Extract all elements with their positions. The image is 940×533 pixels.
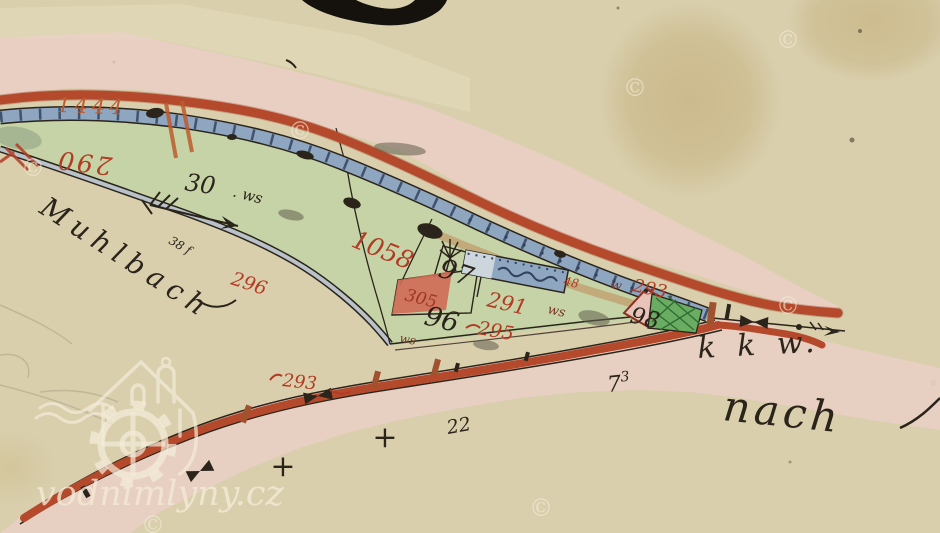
historic-cadastral-map: 1444 290 30 . ws 38 f Muhlbach 296 1058 … [0, 0, 940, 533]
copyright-icon: © [529, 494, 553, 522]
copyright-icon: © [776, 292, 800, 320]
parcel-label-293-lower: 293 [280, 370, 317, 395]
parcel-label-30: 30 [183, 168, 217, 200]
copyright-icon: © [288, 117, 312, 145]
copyright-icon: © [776, 26, 800, 54]
watermark-site-text: vodnimlyny.cz [36, 474, 285, 514]
copyright-icon: © [21, 154, 45, 182]
plus-mark-1: + [372, 420, 397, 455]
map-canvas: 1444 290 30 . ws 38 f Muhlbach 296 1058 … [0, 0, 940, 533]
distance-73-sup: 3 [620, 369, 631, 386]
parcel-label-1444: 1444 [57, 93, 127, 119]
copyright-icon: © [141, 511, 165, 533]
distance-22: 22 [444, 413, 473, 439]
copyright-icon: © [623, 74, 647, 102]
road-abbr-kkw: k k w. [697, 325, 822, 366]
ws-abbr-96: ws [398, 331, 417, 348]
